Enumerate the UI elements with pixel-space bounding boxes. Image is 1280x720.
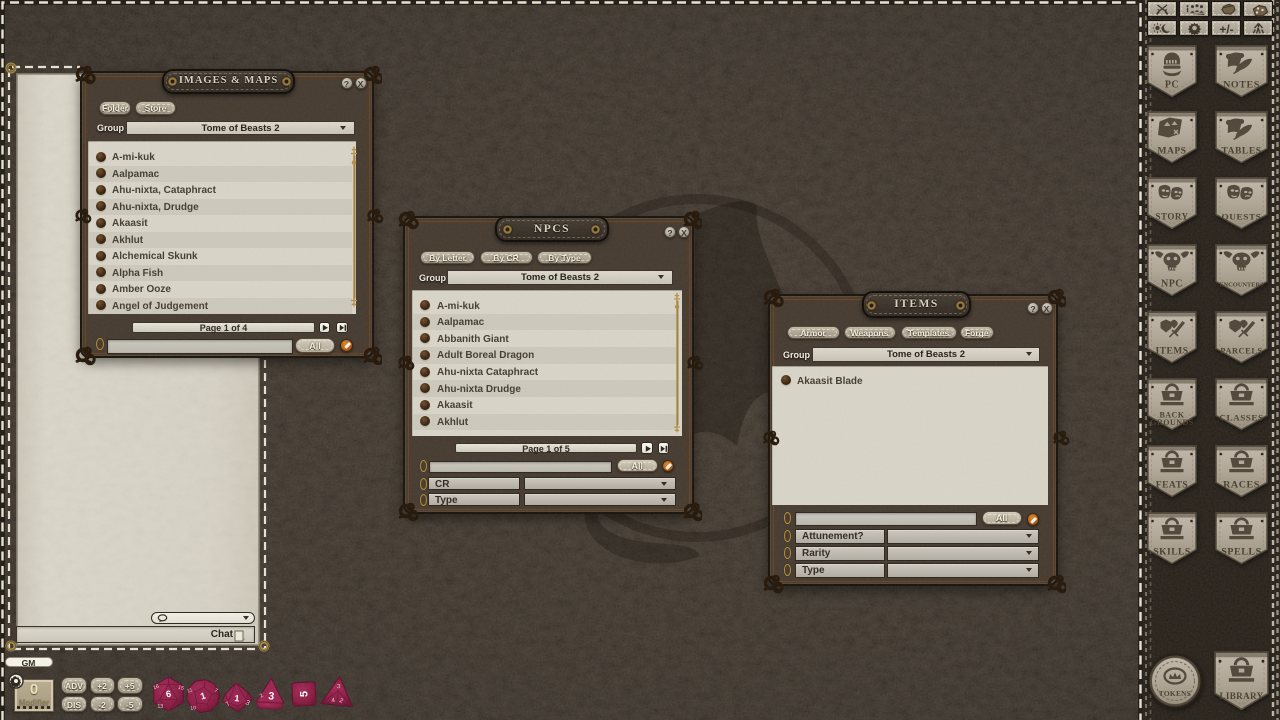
svg-text:13: 13 bbox=[157, 704, 163, 710]
svg-text:NPC: NPC bbox=[1161, 279, 1183, 290]
svg-text:QUESTS: QUESTS bbox=[1222, 212, 1262, 222]
svg-text:TOKENS: TOKENS bbox=[1159, 689, 1191, 698]
svg-text:GROUNDS: GROUNDS bbox=[1150, 418, 1194, 427]
svg-text:SPELLS: SPELLS bbox=[1221, 547, 1262, 558]
svg-text:MAPS: MAPS bbox=[1158, 147, 1187, 157]
svg-text:+/-: +/- bbox=[1219, 22, 1233, 36]
svg-text:ITEMS: ITEMS bbox=[1155, 347, 1188, 357]
svg-text:1: 1 bbox=[234, 693, 240, 703]
svg-text:ENCOUNTERS: ENCOUNTERS bbox=[1219, 282, 1264, 289]
svg-text:RACES: RACES bbox=[1223, 480, 1260, 491]
svg-text:TABLES: TABLES bbox=[1221, 147, 1261, 157]
svg-text:LIBRARY: LIBRARY bbox=[1219, 692, 1263, 702]
svg-text:PC: PC bbox=[1165, 80, 1179, 91]
svg-text:NOTES: NOTES bbox=[1223, 80, 1260, 91]
svg-text:PARCELS: PARCELS bbox=[1220, 346, 1262, 356]
svg-text:CLASSES: CLASSES bbox=[1219, 413, 1263, 423]
svg-text:10: 10 bbox=[190, 705, 197, 712]
svg-text:STORY: STORY bbox=[1155, 212, 1188, 222]
svg-text:FEATS: FEATS bbox=[1156, 481, 1188, 491]
svg-text:5: 5 bbox=[299, 691, 311, 697]
svg-text:SKILLS: SKILLS bbox=[1153, 548, 1190, 558]
